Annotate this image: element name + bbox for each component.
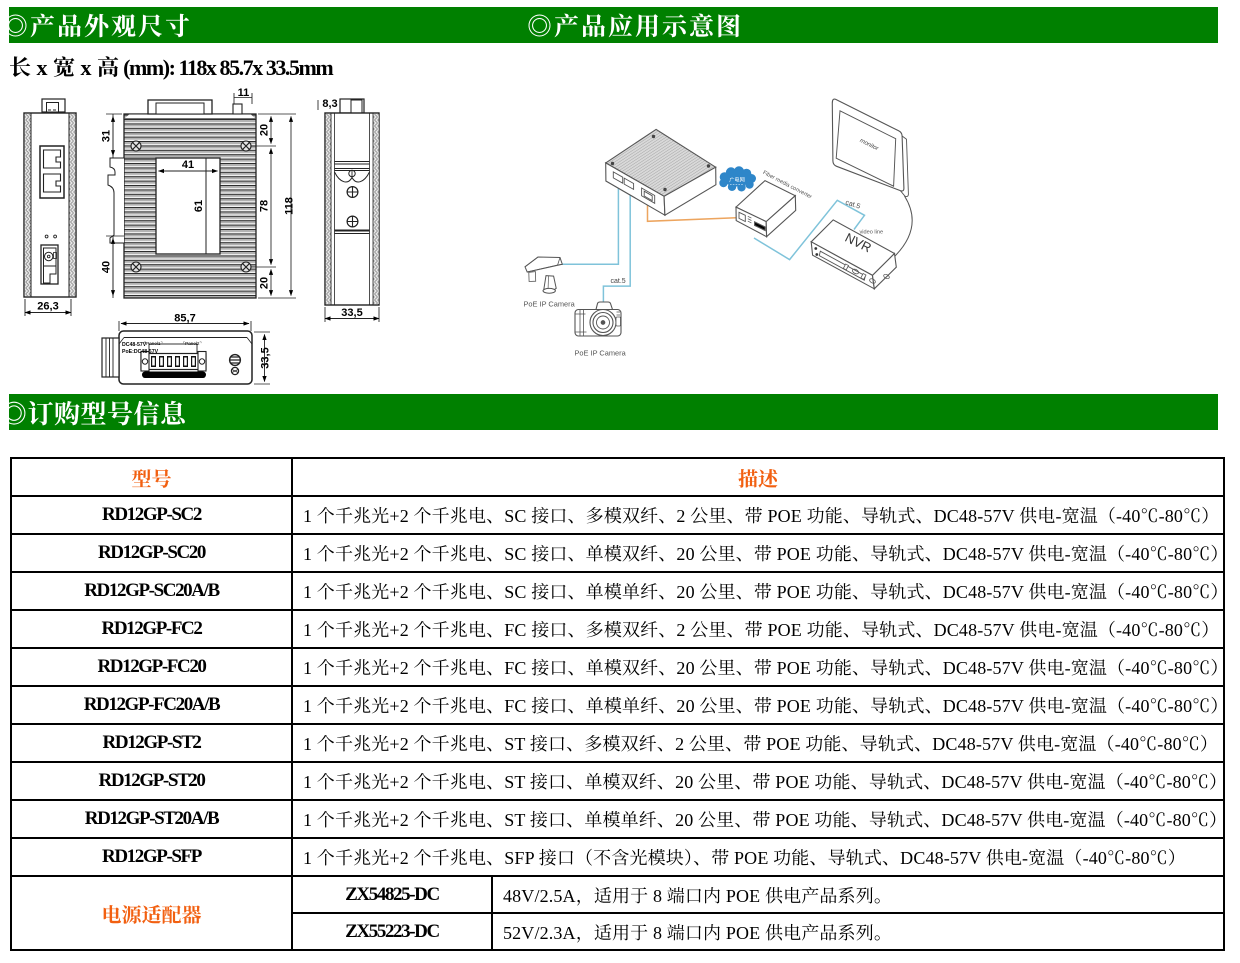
svg-text:118: 118 [284,197,296,215]
svg-text:video line: video line [860,230,884,236]
svg-text:PoE IP Camera: PoE IP Camera [575,349,627,358]
svg-text:20: 20 [259,124,271,136]
svg-text:PoE IP Camera: PoE IP Camera [524,300,576,309]
svg-text:85,7: 85,7 [174,313,195,325]
svg-text:78: 78 [259,200,271,212]
svg-text:61: 61 [193,200,205,212]
svg-text:⌜Panel2⌝: ⌜Panel2⌝ [183,341,202,346]
svg-text:33,5: 33,5 [341,307,362,319]
svg-text:广电网: 广电网 [729,176,745,184]
svg-text:41: 41 [182,159,194,171]
svg-text:⌜Panel1⌝: ⌜Panel1⌝ [144,341,163,346]
svg-text:PoE:DC48-57V: PoE:DC48-57V [122,349,159,355]
svg-text:40: 40 [101,261,113,273]
svg-text:20: 20 [259,277,271,289]
svg-text:31: 31 [101,130,113,142]
svg-text:8,3: 8,3 [322,98,337,110]
svg-text:26,3: 26,3 [37,301,58,313]
svg-text:cat.5: cat.5 [611,278,626,285]
svg-text:33,5: 33,5 [260,347,272,368]
svg-text:11: 11 [238,87,250,99]
